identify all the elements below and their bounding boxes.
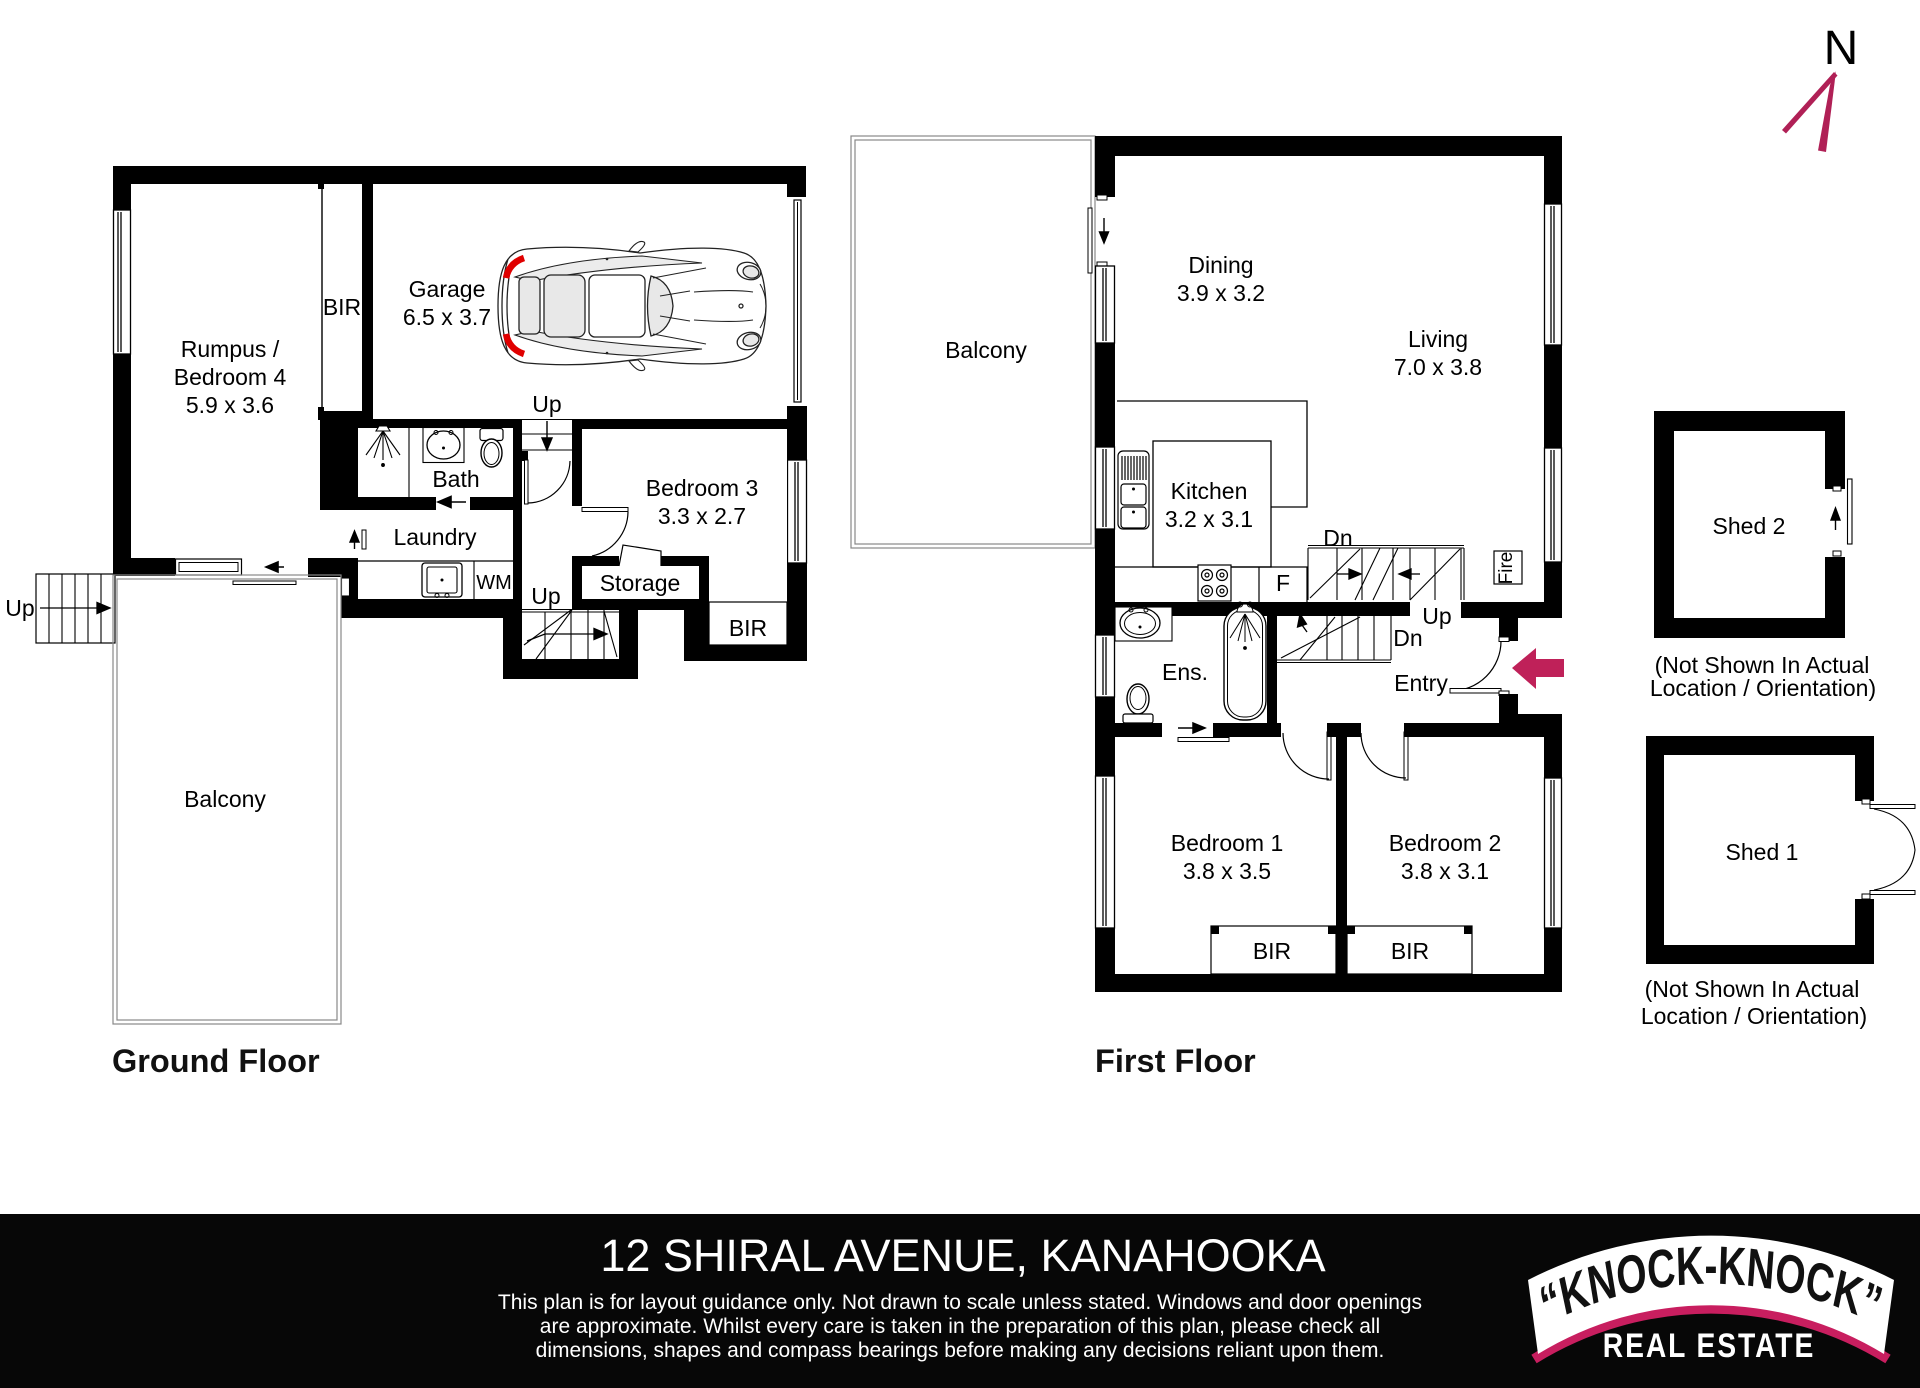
svg-text:Ground Floor: Ground Floor [112, 1043, 320, 1079]
svg-text:3.2 x 3.1: 3.2 x 3.1 [1165, 506, 1253, 532]
svg-text:7.0 x 3.8: 7.0 x 3.8 [1394, 354, 1482, 380]
svg-text:Bedroom 2: Bedroom 2 [1389, 830, 1502, 856]
svg-text:Living: Living [1408, 326, 1468, 352]
svg-text:WM: WM [476, 572, 512, 594]
svg-text:N: N [1824, 22, 1859, 75]
svg-text:Balcony: Balcony [184, 786, 266, 812]
svg-text:dimensions, shapes and compass: dimensions, shapes and compass bearings … [536, 1339, 1385, 1362]
svg-text:Fire: Fire [1496, 552, 1517, 585]
svg-text:This plan is for layout guidan: This plan is for layout guidance only. N… [498, 1291, 1422, 1314]
svg-text:Bedroom 4: Bedroom 4 [174, 364, 287, 390]
svg-text:F: F [1276, 570, 1290, 596]
svg-text:Dn: Dn [1323, 525, 1352, 551]
svg-text:3.3 x 2.7: 3.3 x 2.7 [658, 503, 746, 529]
svg-text:Location / Orientation): Location / Orientation) [1650, 675, 1876, 701]
svg-text:Up: Up [531, 583, 560, 609]
svg-text:BIR: BIR [1391, 938, 1429, 964]
svg-text:Kitchen: Kitchen [1171, 478, 1248, 504]
svg-text:Garage: Garage [409, 276, 486, 302]
svg-text:Laundry: Laundry [393, 524, 477, 550]
svg-text:are approximate. Whilst every: are approximate. Whilst every care is ta… [540, 1315, 1380, 1338]
svg-text:Up: Up [1422, 603, 1451, 629]
svg-text:Entry: Entry [1394, 670, 1448, 696]
svg-text:REAL ESTATE: REAL ESTATE [1603, 1325, 1815, 1364]
svg-text:Dn: Dn [1393, 625, 1422, 651]
svg-text:Location / Orientation): Location / Orientation) [1641, 1003, 1867, 1029]
svg-text:Bedroom 1: Bedroom 1 [1171, 830, 1284, 856]
svg-text:3.8 x 3.5: 3.8 x 3.5 [1183, 858, 1271, 884]
svg-text:BIR: BIR [1253, 938, 1291, 964]
svg-text:3.8 x 3.1: 3.8 x 3.1 [1401, 858, 1489, 884]
svg-text:Rumpus /: Rumpus / [181, 336, 280, 362]
svg-text:BIR: BIR [323, 294, 361, 320]
svg-text:3.9 x 3.2: 3.9 x 3.2 [1177, 280, 1265, 306]
svg-text:Storage: Storage [600, 570, 681, 596]
svg-text:Shed 2: Shed 2 [1713, 513, 1786, 539]
svg-text:Up: Up [532, 391, 561, 417]
svg-text:Bedroom 3: Bedroom 3 [646, 475, 759, 501]
svg-text:Ens.: Ens. [1162, 659, 1208, 685]
svg-text:6.5 x 3.7: 6.5 x 3.7 [403, 304, 491, 330]
svg-text:12 SHIRAL AVENUE, KANAHOOKA: 12 SHIRAL AVENUE, KANAHOOKA [600, 1230, 1325, 1281]
svg-text:Dining: Dining [1188, 252, 1253, 278]
svg-text:(Not Shown In Actual: (Not Shown In Actual [1645, 976, 1860, 1002]
svg-text:Up: Up [5, 595, 34, 621]
svg-text:Shed 1: Shed 1 [1726, 839, 1799, 865]
svg-text:Bath: Bath [432, 466, 479, 492]
svg-text:Balcony: Balcony [945, 337, 1027, 363]
svg-text:5.9 x 3.6: 5.9 x 3.6 [186, 392, 274, 418]
svg-text:BIR: BIR [729, 615, 767, 641]
svg-text:First Floor: First Floor [1095, 1043, 1256, 1079]
